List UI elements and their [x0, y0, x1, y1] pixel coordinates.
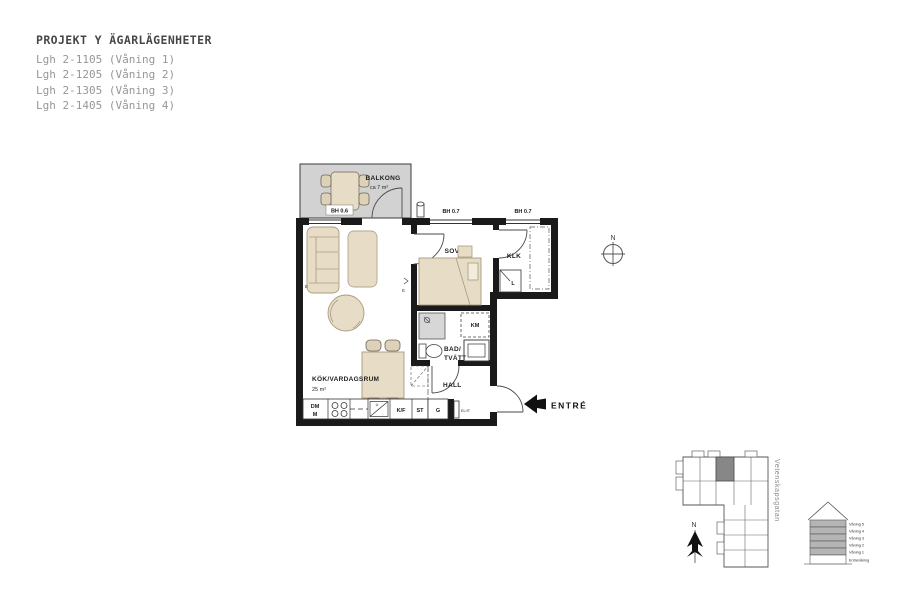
rain-pipe [417, 202, 424, 217]
bathroom: KM BAD/ TVÄTT [419, 313, 489, 362]
entrance-arrow-icon [524, 395, 546, 414]
site-north-arrow-icon: N [687, 522, 703, 563]
balcony-label: BALKONG [366, 175, 401, 182]
floor-plan-drawing: BALKONG ca 7 m² BH 0.6 [0, 0, 900, 600]
balcony-parapet-label: BH 0.6 [331, 209, 348, 215]
outlet-arrow-icon [404, 278, 408, 284]
hall-wardrobe-label: G [436, 408, 440, 414]
floor-label: Våning 3 [849, 537, 864, 541]
wardrobe-dashed [530, 227, 549, 289]
window-bh-label-bedroom: BH 0.7 [442, 209, 459, 215]
linen-cabinet: L [500, 270, 521, 292]
window-bedroom [430, 220, 472, 224]
electrical-cabinet-label: EL/IT [461, 409, 471, 413]
kitchen-living-area: 25 m² [312, 387, 326, 393]
nightstand [458, 246, 472, 257]
sofa [307, 227, 339, 293]
kitchen-counter: DM M U K/F ST [303, 399, 428, 419]
floor-label: Våning 2 [849, 544, 864, 548]
combi-machine-label: KM [471, 323, 480, 329]
hall-wardrobe: G [428, 399, 448, 419]
electrical-cabinet: EL/IT [454, 401, 471, 418]
closet: KLK L [500, 227, 549, 292]
closet-label: KLK [507, 253, 521, 260]
outlet-mark: E [305, 284, 308, 289]
entrance-marker: ENTRÉ [524, 395, 587, 414]
pillow [468, 263, 478, 280]
linen-cabinet-label: L [511, 281, 515, 287]
sink-mark: U [376, 403, 379, 407]
floor-label: Våning 4 [849, 530, 864, 534]
floor-label: Våning 1 [849, 551, 864, 555]
bedroom-label: SOV [445, 248, 460, 255]
shaft [411, 366, 428, 386]
entrance-door [497, 386, 523, 412]
compass-icon: N [601, 235, 625, 266]
bedroom: SOV 8 m² [419, 246, 481, 305]
kitchen-living-label: KÖK/VARDAGSRUM [312, 374, 379, 383]
balcony: BALKONG ca 7 m² BH 0.6 [300, 164, 411, 218]
window-bh-label-closet: BH 0.7 [514, 209, 531, 215]
side-table [348, 231, 377, 287]
roof [808, 502, 848, 520]
living-room: KÖK/VARDAGSRUM 25 m² E E E [305, 227, 423, 409]
armchair [328, 295, 364, 331]
dishwasher-sub-label: M [313, 412, 318, 418]
window-living [309, 220, 341, 224]
bathroom-label-2: TVÄTT [444, 354, 466, 362]
washing-machine [464, 340, 489, 361]
floor-label: Entrévåning [849, 559, 869, 563]
dishwasher-label: DM [311, 404, 320, 410]
floor-bands [810, 520, 846, 564]
highlighted-unit [716, 457, 734, 481]
floor-label: Våning 5 [849, 523, 864, 527]
shower [419, 313, 445, 339]
hall-label: HALL [443, 382, 462, 389]
pantry-label: ST [416, 408, 424, 414]
compass-north-label: N [610, 235, 615, 242]
site-plan: Vetenskapsgatan N [676, 451, 780, 567]
toilet [419, 344, 442, 358]
bathroom-label-1: BAD/ [444, 346, 461, 353]
building-elevation: Våning 5 Våning 4 Våning 3 Våning 2 Våni… [804, 502, 869, 564]
balcony-area: ca 7 m² [370, 185, 389, 191]
site-north-label: N [691, 522, 696, 529]
window-closet [506, 220, 540, 224]
fridge-freezer-label: K/F [397, 408, 407, 414]
street-label: Vetenskapsgatan [773, 459, 780, 522]
entrance-label: ENTRÉ [551, 401, 587, 411]
outlet-mark: E [402, 288, 405, 293]
